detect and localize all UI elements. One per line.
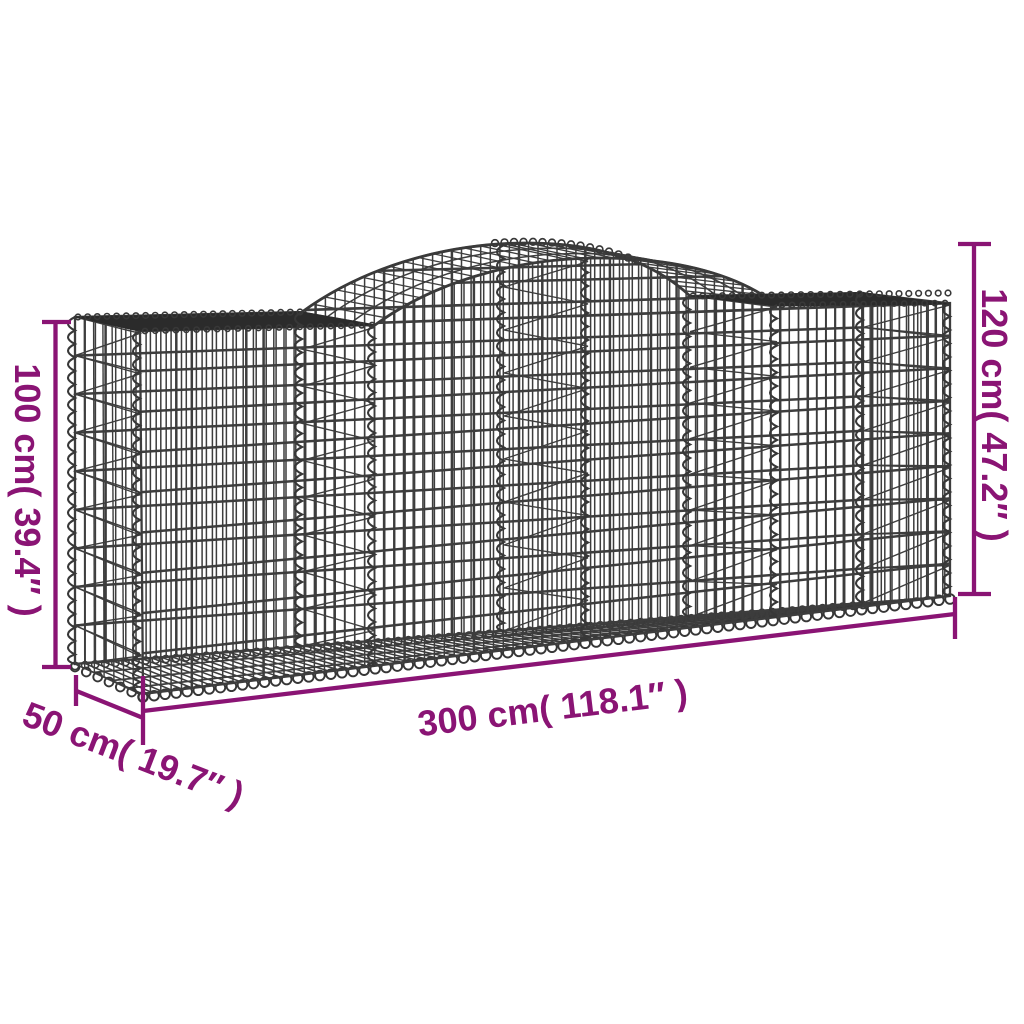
svg-text:100 cm( 39.4″ ): 100 cm( 39.4″ ) (7, 363, 48, 616)
svg-text:120 cm( 47.2″ ): 120 cm( 47.2″ ) (974, 288, 1015, 541)
